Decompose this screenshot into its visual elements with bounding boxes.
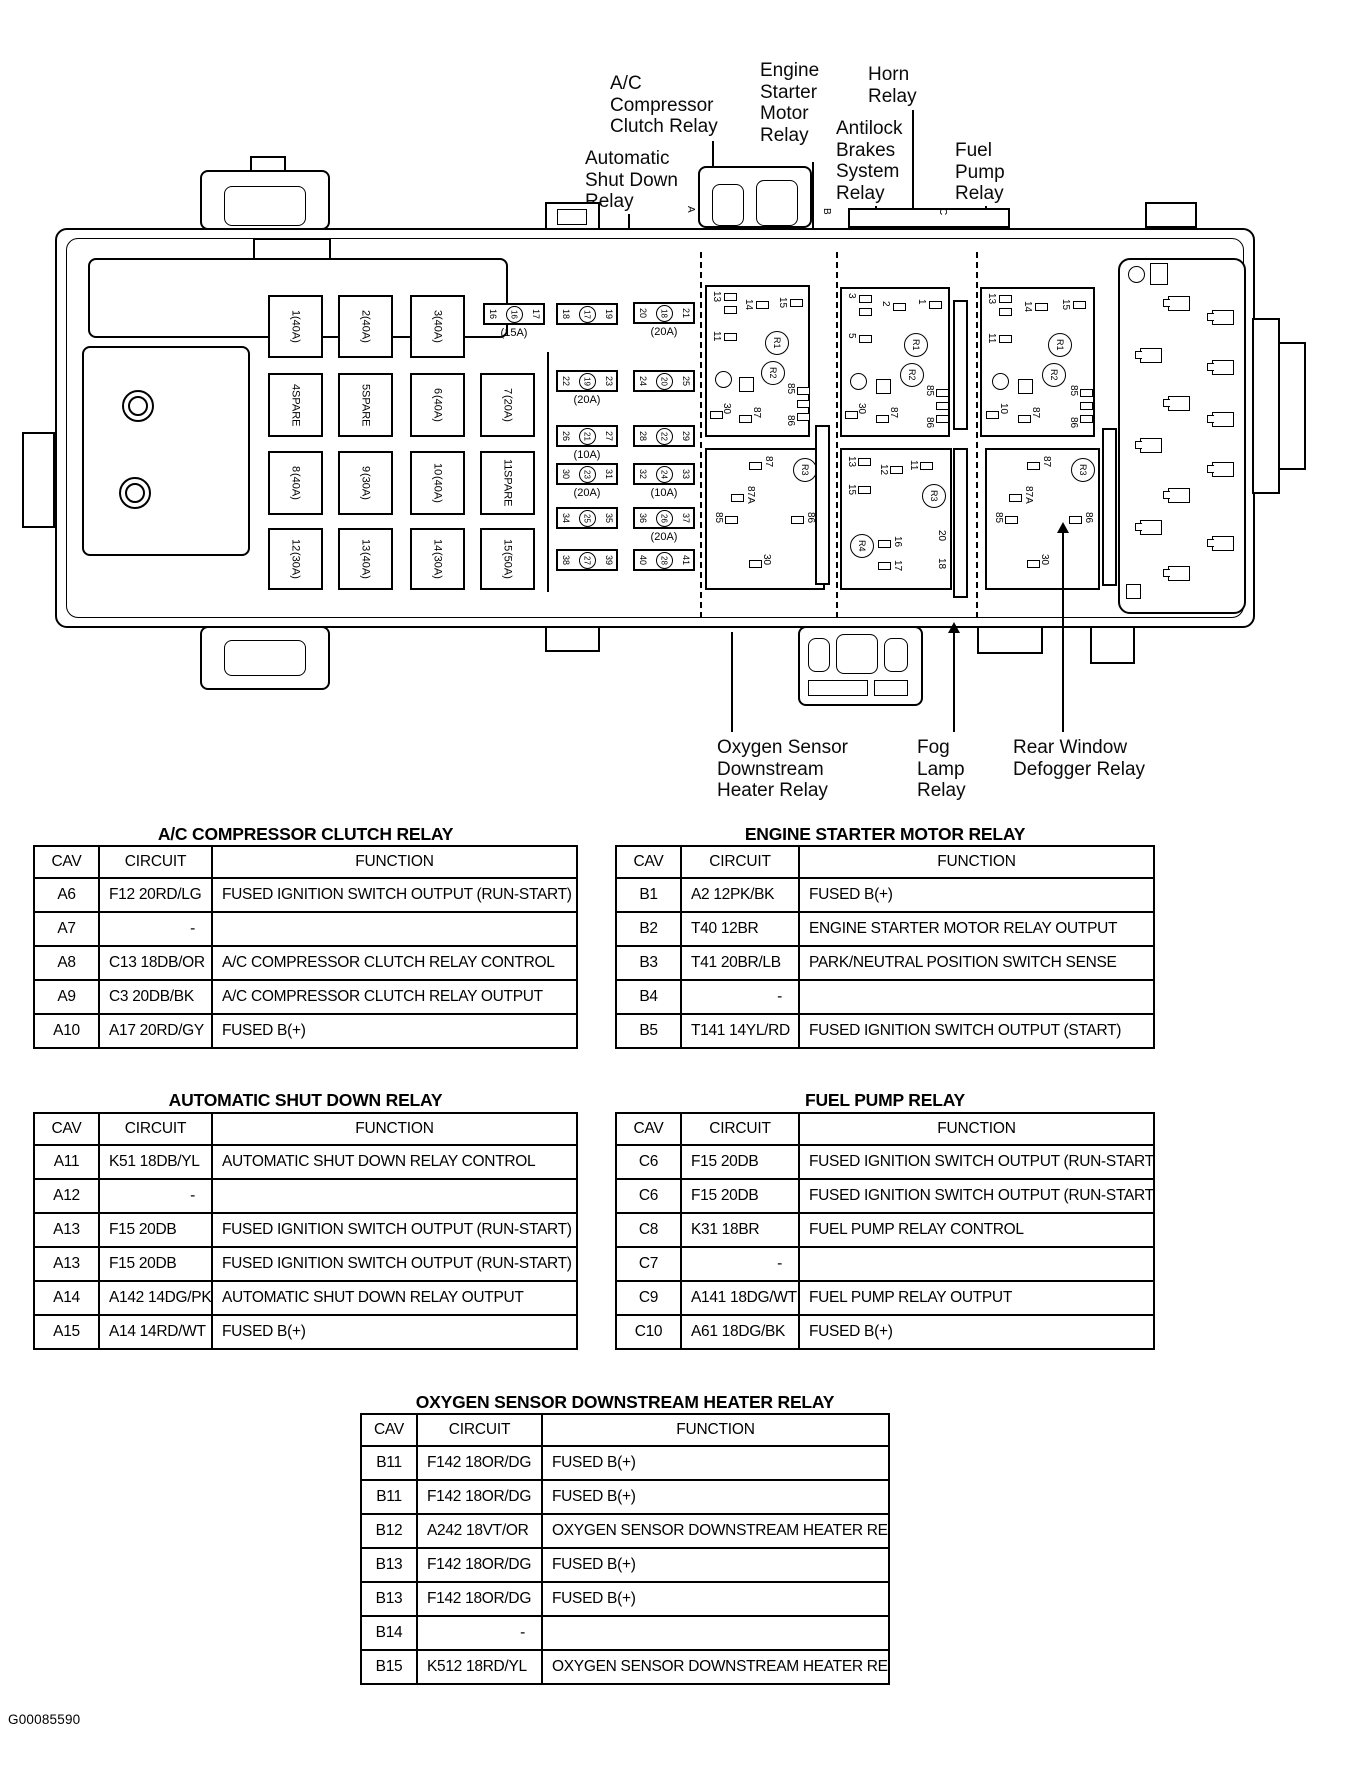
pin-icon xyxy=(1009,494,1022,502)
table-row: B14 - xyxy=(361,1616,889,1650)
table-row: B11 F142 18OR/DG FUSED B(+) xyxy=(361,1480,889,1514)
cav-cell: B4 xyxy=(616,980,681,1014)
relay-section-a-top: 13 11 14 15 R1 R2 85 86 30 87 xyxy=(705,285,810,437)
table-title-fuel-pump: FUEL PUMP RELAY xyxy=(615,1090,1155,1111)
table-row: B2 T40 12BR ENGINE STARTER MOTOR RELAY O… xyxy=(616,912,1154,946)
hole-icon xyxy=(1128,266,1145,283)
circuit-cell: A17 20RD/GY xyxy=(99,1014,212,1048)
mount-tab-inner xyxy=(756,180,798,226)
pin-icon xyxy=(724,306,737,314)
table-row: C10 A61 18DG/BK FUSED B(+) xyxy=(616,1315,1154,1349)
mount-foot xyxy=(545,626,600,652)
function-cell: OXYGEN SENSOR DOWNSTREAM HEATER RELAY xyxy=(542,1514,889,1548)
cav-cell: B15 xyxy=(361,1650,417,1684)
table-title-oxygen-sensor: OXYGEN SENSOR DOWNSTREAM HEATER RELAY xyxy=(360,1392,890,1413)
relay-circle-r3: R3 xyxy=(1071,458,1095,482)
mini-fuse-18-19: 181719 xyxy=(556,303,618,327)
terminal-icon xyxy=(1212,536,1234,551)
pin-icon xyxy=(1069,516,1082,524)
side-bracket xyxy=(1278,342,1306,470)
function-cell: FUSED B(+) xyxy=(542,1446,889,1480)
terminal-icon xyxy=(1212,310,1234,325)
terminal-icon xyxy=(1168,566,1190,581)
mini-fuse-32-33: 322433(10A) xyxy=(633,463,695,499)
key-slot-icon xyxy=(1150,263,1168,285)
mount-tab-inner xyxy=(557,209,587,225)
col-header-function: FUNCTION xyxy=(799,1113,1154,1145)
cav-cell: B3 xyxy=(616,946,681,980)
mount-tab xyxy=(1145,202,1197,228)
function-cell xyxy=(799,980,1154,1014)
pin-icon xyxy=(724,333,737,341)
fuse-9: 9(30A) xyxy=(338,451,393,515)
circuit-cell: F15 20DB xyxy=(99,1247,212,1281)
fuse-7: 7(20A) xyxy=(480,373,535,437)
hole-icon xyxy=(715,371,732,388)
fuse-11: 11SPARE xyxy=(480,451,535,515)
fuse-position-circle: 17 xyxy=(579,306,596,323)
function-cell: FUSED B(+) xyxy=(542,1480,889,1514)
pin-icon xyxy=(739,415,752,423)
table-row: A7 - xyxy=(34,912,577,946)
fuse-position-circle: 20 xyxy=(656,373,673,390)
function-cell xyxy=(542,1616,889,1650)
pin-icon xyxy=(858,458,871,466)
col-header-circuit: CIRCUIT xyxy=(99,846,212,878)
section-divider xyxy=(976,252,978,618)
col-header-cav: CAV xyxy=(616,1113,681,1145)
circuit-cell: F15 20DB xyxy=(681,1179,799,1213)
relay-circle-r4: R4 xyxy=(850,534,874,558)
function-cell: FUSED B(+) xyxy=(542,1548,889,1582)
function-cell: OXYGEN SENSOR DOWNSTREAM HEATER RELAY xyxy=(542,1650,889,1684)
pin-icon xyxy=(1080,389,1093,397)
pin-icon xyxy=(725,516,738,524)
function-cell xyxy=(212,1179,577,1213)
pin-icon xyxy=(1073,301,1086,309)
circuit-cell: A61 18DG/BK xyxy=(681,1315,799,1349)
pin-icon xyxy=(859,335,872,343)
side-bracket xyxy=(1252,318,1280,494)
table-row: B4 - xyxy=(616,980,1154,1014)
key-slot-icon xyxy=(1018,379,1033,394)
col-header-function: FUNCTION xyxy=(542,1414,889,1446)
fuse-12: 12(30A) xyxy=(268,528,323,590)
circuit-cell: C3 20DB/BK xyxy=(99,980,212,1014)
relay-circle-r3: R3 xyxy=(793,458,817,482)
table-row: A14 A142 14DG/PK AUTOMATIC SHUT DOWN REL… xyxy=(34,1281,577,1315)
function-cell: FUEL PUMP RELAY OUTPUT xyxy=(799,1281,1154,1315)
pin-icon xyxy=(791,516,804,524)
mini-fuse-22-23: 221923(20A) xyxy=(556,370,618,406)
relay-section-b-top: 3 5 2 1 R1 R2 85 86 30 87 xyxy=(840,287,950,437)
circuit-cell: T40 12BR xyxy=(681,912,799,946)
pin-icon xyxy=(1027,560,1040,568)
mini-fuse-30-31: 302331(20A) xyxy=(556,463,618,499)
hole-icon xyxy=(992,373,1009,390)
pin-icon xyxy=(859,295,872,303)
mini-fuse-38-39: 382739 xyxy=(556,549,618,573)
section-divider xyxy=(700,252,702,618)
fuse-8: 8(40A) xyxy=(268,451,323,515)
table-row: A13 F15 20DB FUSED IGNITION SWITCH OUTPU… xyxy=(34,1247,577,1281)
mount-tab-inner xyxy=(224,186,306,226)
cav-cell: B14 xyxy=(361,1616,417,1650)
function-cell: A/C COMPRESSOR CLUTCH RELAY OUTPUT xyxy=(212,980,577,1014)
leader-fog-lamp xyxy=(953,625,955,732)
pin-icon xyxy=(878,562,891,570)
circuit-cell: A2 12PK/BK xyxy=(681,878,799,912)
table-row: C6 F15 20DB FUSED IGNITION SWITCH OUTPUT… xyxy=(616,1179,1154,1213)
circuit-cell: T141 14YL/RD xyxy=(681,1014,799,1048)
pin-icon xyxy=(1080,402,1093,410)
function-cell: FUSED IGNITION SWITCH OUTPUT (RUN-START) xyxy=(212,878,577,912)
fuse-5: 5SPARE xyxy=(338,373,393,437)
cav-cell: C6 xyxy=(616,1179,681,1213)
key-slot-icon xyxy=(739,377,754,392)
relay-circle-r1: R1 xyxy=(765,331,789,355)
circuit-cell: F142 18OR/DG xyxy=(417,1582,542,1616)
table-row: A15 A14 14RD/WT FUSED B(+) xyxy=(34,1315,577,1349)
key-slot-icon xyxy=(1126,584,1141,599)
hole-icon xyxy=(850,373,867,390)
pin-icon xyxy=(749,560,762,568)
cav-cell: A8 xyxy=(34,946,99,980)
mount-hook xyxy=(1090,626,1135,664)
leader-rear-defogger xyxy=(1062,525,1064,732)
mini-fuse-26-27: 262127(10A) xyxy=(556,425,618,461)
bottom-connector-inner xyxy=(874,680,908,696)
table-row: A13 F15 20DB FUSED IGNITION SWITCH OUTPU… xyxy=(34,1213,577,1247)
cav-cell: A13 xyxy=(34,1247,99,1281)
terminal-icon xyxy=(1140,438,1162,453)
mini-fuse-28-29: 282229 xyxy=(633,425,695,449)
fuse-15: 15(50A) xyxy=(480,528,535,590)
circuit-cell: A142 14DG/PK xyxy=(99,1281,212,1315)
relay-circle-r1: R1 xyxy=(904,333,928,357)
circuit-cell: K51 18DB/YL xyxy=(99,1145,212,1179)
mount-rail xyxy=(848,208,1010,228)
circuit-cell: A242 18VT/OR xyxy=(417,1514,542,1548)
fuse-14: 14(30A) xyxy=(410,528,465,590)
cav-cell: A7 xyxy=(34,912,99,946)
terminal-icon xyxy=(1212,412,1234,427)
fuse-position-circle: 18 xyxy=(656,305,673,322)
figure-id: G00085590 xyxy=(8,1712,80,1727)
leader-oxygen-sensor xyxy=(731,632,733,732)
key-slot-icon xyxy=(876,379,891,394)
col-header-circuit: CIRCUIT xyxy=(681,846,799,878)
pin-icon xyxy=(859,308,872,316)
function-cell: FUSED IGNITION SWITCH OUTPUT (RUN-START) xyxy=(799,1179,1154,1213)
col-header-circuit: CIRCUIT xyxy=(417,1414,542,1446)
cav-cell: B13 xyxy=(361,1548,417,1582)
pin-icon xyxy=(710,411,723,419)
circuit-cell: - xyxy=(417,1616,542,1650)
table-row: A9 C3 20DB/BK A/C COMPRESSOR CLUTCH RELA… xyxy=(34,980,577,1014)
col-header-cav: CAV xyxy=(361,1414,417,1446)
relay-circle-r2: R2 xyxy=(761,361,785,385)
callout-horn-relay: Horn Relay xyxy=(868,64,917,107)
table-row: A10 A17 20RD/GY FUSED B(+) xyxy=(34,1014,577,1048)
table-row: B12 A242 18VT/OR OXYGEN SENSOR DOWNSTREA… xyxy=(361,1514,889,1548)
table-row: A8 C13 18DB/OR A/C COMPRESSOR CLUTCH REL… xyxy=(34,946,577,980)
table-row: B3 T41 20BR/LB PARK/NEUTRAL POSITION SWI… xyxy=(616,946,1154,980)
fuse-position-circle: 23 xyxy=(579,466,596,483)
pin-icon xyxy=(797,400,810,408)
screw-hole-icon xyxy=(119,477,151,509)
terminal-icon xyxy=(1212,462,1234,477)
cav-cell: C7 xyxy=(616,1247,681,1281)
cav-cell: B11 xyxy=(361,1480,417,1514)
circuit-cell: F15 20DB xyxy=(99,1213,212,1247)
circuit-cell: F142 18OR/DG xyxy=(417,1446,542,1480)
pin-icon xyxy=(893,303,906,311)
table-title-ac-compressor: A/C COMPRESSOR CLUTCH RELAY xyxy=(33,824,578,845)
fuse-10: 10(40A) xyxy=(410,451,465,515)
arrow-up-icon xyxy=(1057,516,1069,533)
fuse-13: 13(40A) xyxy=(338,528,393,590)
mount-foot-inner xyxy=(224,640,306,676)
function-cell: FUSED B(+) xyxy=(212,1315,577,1349)
callout-engine-starter-motor-relay: Engine Starter Motor Relay xyxy=(760,60,819,146)
terminal-icon xyxy=(1140,348,1162,363)
circuit-cell: - xyxy=(681,980,799,1014)
table-row: A6 F12 20RD/LG FUSED IGNITION SWITCH OUT… xyxy=(34,878,577,912)
pin-icon xyxy=(999,295,1012,303)
table-row: B15 K512 18RD/YL OXYGEN SENSOR DOWNSTREA… xyxy=(361,1650,889,1684)
col-header-function: FUNCTION xyxy=(212,846,577,878)
table-oxygen-sensor: CAV CIRCUIT FUNCTION B11 F142 18OR/DG FU… xyxy=(360,1413,890,1685)
table-row: B13 F142 18OR/DG FUSED B(+) xyxy=(361,1582,889,1616)
pin-icon xyxy=(790,299,803,307)
pin-icon xyxy=(845,411,858,419)
relay-circle-r1: R1 xyxy=(1048,333,1072,357)
cav-cell: B1 xyxy=(616,878,681,912)
function-cell xyxy=(799,1247,1154,1281)
bottom-connector-inner xyxy=(884,638,908,672)
fuse-6: 6(40A) xyxy=(410,373,465,437)
mini-fuse-20-21: 201821(20A) xyxy=(633,302,695,338)
function-cell: AUTOMATIC SHUT DOWN RELAY CONTROL xyxy=(212,1145,577,1179)
fuse-3: 3(40A) xyxy=(410,295,465,358)
pin-icon xyxy=(999,308,1012,316)
table-row: B11 F142 18OR/DG FUSED B(+) xyxy=(361,1446,889,1480)
col-header-function: FUNCTION xyxy=(799,846,1154,878)
cav-cell: A9 xyxy=(34,980,99,1014)
function-cell: FUEL PUMP RELAY CONTROL xyxy=(799,1213,1154,1247)
fuse-4: 4SPARE xyxy=(268,373,323,437)
terminal-icon xyxy=(1140,520,1162,535)
bottom-connector-inner xyxy=(808,638,830,672)
connector-strip xyxy=(1102,428,1117,586)
relay-circle-r2: R2 xyxy=(1042,363,1066,387)
circuit-cell: K512 18RD/YL xyxy=(417,1650,542,1684)
relay-section-c-bottom: 87 R3 87A 85 86 30 xyxy=(985,448,1100,590)
pin-icon xyxy=(1080,415,1093,423)
connector-strip xyxy=(953,300,968,430)
circuit-cell: A141 18DG/WT xyxy=(681,1281,799,1315)
circuit-cell: T41 20BR/LB xyxy=(681,946,799,980)
table-fuel-pump: CAV CIRCUIT FUNCTION C6 F15 20DB FUSED I… xyxy=(615,1112,1155,1350)
table-row: C6 F15 20DB FUSED IGNITION SWITCH OUTPUT… xyxy=(616,1145,1154,1179)
pin-icon xyxy=(797,387,810,395)
pin-icon xyxy=(986,411,999,419)
cav-cell: A15 xyxy=(34,1315,99,1349)
mini-fuse-24-25: 242025 xyxy=(633,370,695,394)
circuit-cell: F12 20RD/LG xyxy=(99,878,212,912)
circuit-cell: F142 18OR/DG xyxy=(417,1548,542,1582)
col-header-cav: CAV xyxy=(616,846,681,878)
col-header-circuit: CIRCUIT xyxy=(681,1113,799,1145)
fuse-grid-divider xyxy=(547,352,549,592)
pin-icon xyxy=(1018,415,1031,423)
relay-circle-r2: R2 xyxy=(900,363,924,387)
screw-hole-inner xyxy=(128,396,148,416)
mini-fuse-34-35: 342535 xyxy=(556,507,618,531)
cav-cell: A6 xyxy=(34,878,99,912)
mini-fuse-16-17: 161617(15A) xyxy=(483,303,545,339)
pin-icon xyxy=(756,301,769,309)
function-cell: FUSED IGNITION SWITCH OUTPUT (RUN-START) xyxy=(799,1145,1154,1179)
screw-hole-icon xyxy=(122,390,154,422)
relay-section-b-bottom: 13 15 12 11 R3 R4 16 17 20 18 xyxy=(840,448,952,590)
fuse-position-circle: 26 xyxy=(656,510,673,527)
table-row: A11 K51 18DB/YL AUTOMATIC SHUT DOWN RELA… xyxy=(34,1145,577,1179)
cav-cell: C6 xyxy=(616,1145,681,1179)
mini-fuse-40-41: 402841 xyxy=(633,549,695,573)
function-cell: ENGINE STARTER MOTOR RELAY OUTPUT xyxy=(799,912,1154,946)
function-cell xyxy=(212,912,577,946)
mini-fuse-36-37: 362637(20A) xyxy=(633,507,695,543)
function-cell: FUSED IGNITION SWITCH OUTPUT (RUN-START) xyxy=(212,1213,577,1247)
pin-icon xyxy=(936,415,949,423)
connector-strip xyxy=(953,448,968,598)
cav-cell: C10 xyxy=(616,1315,681,1349)
pin-icon xyxy=(936,402,949,410)
function-cell: FUSED B(+) xyxy=(799,1315,1154,1349)
callout-oxygen-sensor-downstream-heater-relay: Oxygen Sensor Downstream Heater Relay xyxy=(717,737,848,802)
table-title-engine-starter: ENGINE STARTER MOTOR RELAY xyxy=(615,824,1155,845)
pin-icon xyxy=(1005,516,1018,524)
table-row: C9 A141 18DG/WT FUEL PUMP RELAY OUTPUT xyxy=(616,1281,1154,1315)
callout-rear-window-defogger-relay: Rear Window Defogger Relay xyxy=(1013,737,1145,780)
mount-tab-inner xyxy=(712,184,744,226)
bottom-connector-inner xyxy=(836,634,878,674)
table-row: B13 F142 18OR/DG FUSED B(+) xyxy=(361,1548,889,1582)
pin-icon xyxy=(749,462,762,470)
chamber-notch xyxy=(253,238,331,260)
circuit-cell: - xyxy=(99,912,212,946)
fuse-box-diagram-page: A/C Compressor Clutch Relay Engine Start… xyxy=(0,0,1361,1788)
circuit-cell: K31 18BR xyxy=(681,1213,799,1247)
function-cell: FUSED B(+) xyxy=(212,1014,577,1048)
pin-icon xyxy=(724,293,737,301)
table-title-auto-shutdown: AUTOMATIC SHUT DOWN RELAY xyxy=(33,1090,578,1111)
cav-cell: A13 xyxy=(34,1213,99,1247)
table-row: C7 - xyxy=(616,1247,1154,1281)
cav-cell: B12 xyxy=(361,1514,417,1548)
mount-hook xyxy=(977,626,1043,654)
circuit-cell: F15 20DB xyxy=(681,1145,799,1179)
cav-cell: B13 xyxy=(361,1582,417,1616)
cav-cell: B5 xyxy=(616,1014,681,1048)
function-cell: FUSED B(+) xyxy=(542,1582,889,1616)
callout-fuel-pump-relay: Fuel Pump Relay xyxy=(955,140,1005,205)
fuse-position-circle: 19 xyxy=(579,373,596,390)
callout-fog-lamp-relay: Fog Lamp Relay xyxy=(917,737,966,802)
terminal-icon xyxy=(1168,396,1190,411)
bottom-connector-inner xyxy=(808,680,868,696)
pin-icon xyxy=(920,462,933,470)
fuse-position-circle: 16 xyxy=(506,306,523,323)
callout-antilock-brakes-system-relay: Antilock Brakes System Relay xyxy=(836,118,903,204)
terminal-icon xyxy=(1168,488,1190,503)
function-cell: PARK/NEUTRAL POSITION SWITCH SENSE xyxy=(799,946,1154,980)
function-cell: FUSED B(+) xyxy=(799,878,1154,912)
function-cell: A/C COMPRESSOR CLUTCH RELAY CONTROL xyxy=(212,946,577,980)
section-divider xyxy=(836,252,838,618)
terminal-icon xyxy=(1168,296,1190,311)
col-header-cav: CAV xyxy=(34,1113,99,1145)
col-header-circuit: CIRCUIT xyxy=(99,1113,212,1145)
pin-icon xyxy=(999,335,1012,343)
relay-section-c-top: 13 11 14 15 R1 R2 85 86 10 87 xyxy=(980,287,1095,437)
fuse-position-circle: 24 xyxy=(656,466,673,483)
function-cell: FUSED IGNITION SWITCH OUTPUT (START) xyxy=(799,1014,1154,1048)
pin-icon xyxy=(797,413,810,421)
fuse-position-circle: 21 xyxy=(579,428,596,445)
cav-cell: A14 xyxy=(34,1281,99,1315)
connector-strip xyxy=(815,425,830,585)
table-row: B1 A2 12PK/BK FUSED B(+) xyxy=(616,878,1154,912)
pin-icon xyxy=(858,486,871,494)
circuit-cell: - xyxy=(681,1247,799,1281)
screw-hole-inner xyxy=(125,483,145,503)
arrow-up-icon xyxy=(948,616,960,633)
table-row: C8 K31 18BR FUEL PUMP RELAY CONTROL xyxy=(616,1213,1154,1247)
cav-cell: A12 xyxy=(34,1179,99,1213)
function-cell: AUTOMATIC SHUT DOWN RELAY OUTPUT xyxy=(212,1281,577,1315)
table-ac-compressor: CAV CIRCUIT FUNCTION A6 F12 20RD/LG FUSE… xyxy=(33,845,578,1049)
relay-circle-r3: R3 xyxy=(922,484,946,508)
fuse-position-circle: 25 xyxy=(579,510,596,527)
circuit-cell: F142 18OR/DG xyxy=(417,1480,542,1514)
cav-cell: B11 xyxy=(361,1446,417,1480)
circuit-cell: A14 14RD/WT xyxy=(99,1315,212,1349)
cav-cell: C9 xyxy=(616,1281,681,1315)
col-header-function: FUNCTION xyxy=(212,1113,577,1145)
fuse-2: 2(40A) xyxy=(338,295,393,358)
terminal-icon xyxy=(1212,360,1234,375)
cav-cell: A11 xyxy=(34,1145,99,1179)
section-letter-c: C xyxy=(938,208,947,215)
table-row: A12 - xyxy=(34,1179,577,1213)
pin-icon xyxy=(878,540,891,548)
pin-icon xyxy=(1027,462,1040,470)
pin-icon xyxy=(1035,303,1048,311)
cav-cell: C8 xyxy=(616,1213,681,1247)
fuse-position-circle: 27 xyxy=(579,552,596,569)
col-header-cav: CAV xyxy=(34,846,99,878)
table-row: B5 T141 14YL/RD FUSED IGNITION SWITCH OU… xyxy=(616,1014,1154,1048)
blank-panel xyxy=(82,346,250,556)
pin-icon xyxy=(929,301,942,309)
circuit-cell: C13 18DB/OR xyxy=(99,946,212,980)
circuit-cell: - xyxy=(99,1179,212,1213)
callout-ac-compressor-clutch-relay: A/C Compressor Clutch Relay xyxy=(610,73,718,138)
cav-cell: B2 xyxy=(616,912,681,946)
